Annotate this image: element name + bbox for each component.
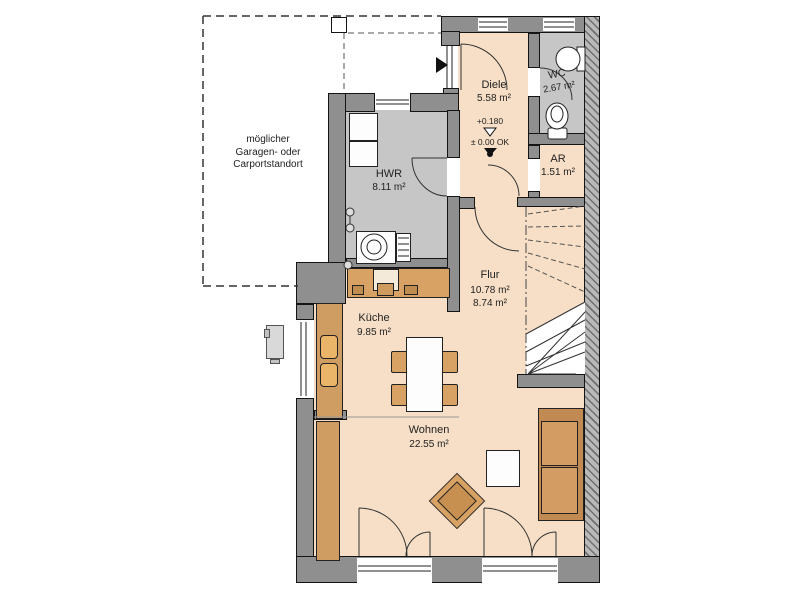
glazing-kitchen-west <box>301 322 306 396</box>
entrance-arrow-icon <box>436 57 448 73</box>
glazing-top-wc <box>544 22 574 27</box>
carport-note-line: möglicher <box>205 134 331 147</box>
carport-note: möglicher Garagen- oder Carportstandort <box>205 134 331 172</box>
glazing-entry-sidelight <box>447 46 452 88</box>
level-marker-filled-icon <box>484 148 497 156</box>
plumbing-connector-icon <box>346 224 354 232</box>
glazing-top-diele <box>479 22 507 27</box>
threshold-terrace-right <box>483 566 557 571</box>
stairs-upper-treads-dashed <box>528 206 585 292</box>
room-area-hwr: 8.11 m² <box>360 181 418 194</box>
level-marker-ground: ± 0.00 OK <box>462 137 518 147</box>
washer-drum-icon <box>361 234 387 260</box>
toilet-tank-icon <box>548 128 567 139</box>
room-label-wohnen: Wohnen <box>399 424 459 437</box>
room-label-kueche: Küche <box>348 312 400 325</box>
door-swing-diele <box>488 165 519 196</box>
toilet-bowl-icon <box>546 103 568 129</box>
dryer-panel-lines <box>398 238 409 256</box>
room-label-hwr: HWR <box>362 168 416 181</box>
carport-note-line: Garagen- oder <box>205 147 331 160</box>
plan-linework <box>0 0 800 600</box>
room-area-kueche: 9.85 m² <box>346 326 402 339</box>
room-area-diele: 5.58 m² <box>458 92 530 105</box>
level-marker-open-icon <box>484 128 496 136</box>
threshold-terrace-left <box>358 566 431 571</box>
carport-note-line: Carportstandort <box>205 159 331 172</box>
door-swing-terrace-left-small <box>406 532 430 556</box>
glazing-hwr <box>376 100 409 104</box>
plumbing-connector-icon <box>346 208 354 216</box>
washer-drum-inner-icon <box>367 240 381 254</box>
room-label-flur: Flur <box>464 269 516 282</box>
room-label-ar: AR <box>534 153 582 166</box>
door-swing-terrace-right-main <box>484 508 532 556</box>
room-area-ar: 1.51 m² <box>532 166 584 179</box>
room-area-flur-secondary: 8.74 m² <box>458 297 522 310</box>
level-marker-entry: +0.180 <box>468 116 512 126</box>
plumbing-connector-icon <box>344 261 352 269</box>
door-swing-terrace-left-main <box>359 508 407 556</box>
door-swing-terrace-right-small <box>532 532 556 556</box>
room-area-flur: 10.78 m² <box>458 284 522 297</box>
room-area-wohnen: 22.55 m² <box>397 438 461 451</box>
floor-plan: möglicher Garagen- oder Carportstandort … <box>0 0 800 600</box>
door-swing-flur <box>475 207 519 251</box>
room-label-diele: Diele <box>458 79 530 92</box>
